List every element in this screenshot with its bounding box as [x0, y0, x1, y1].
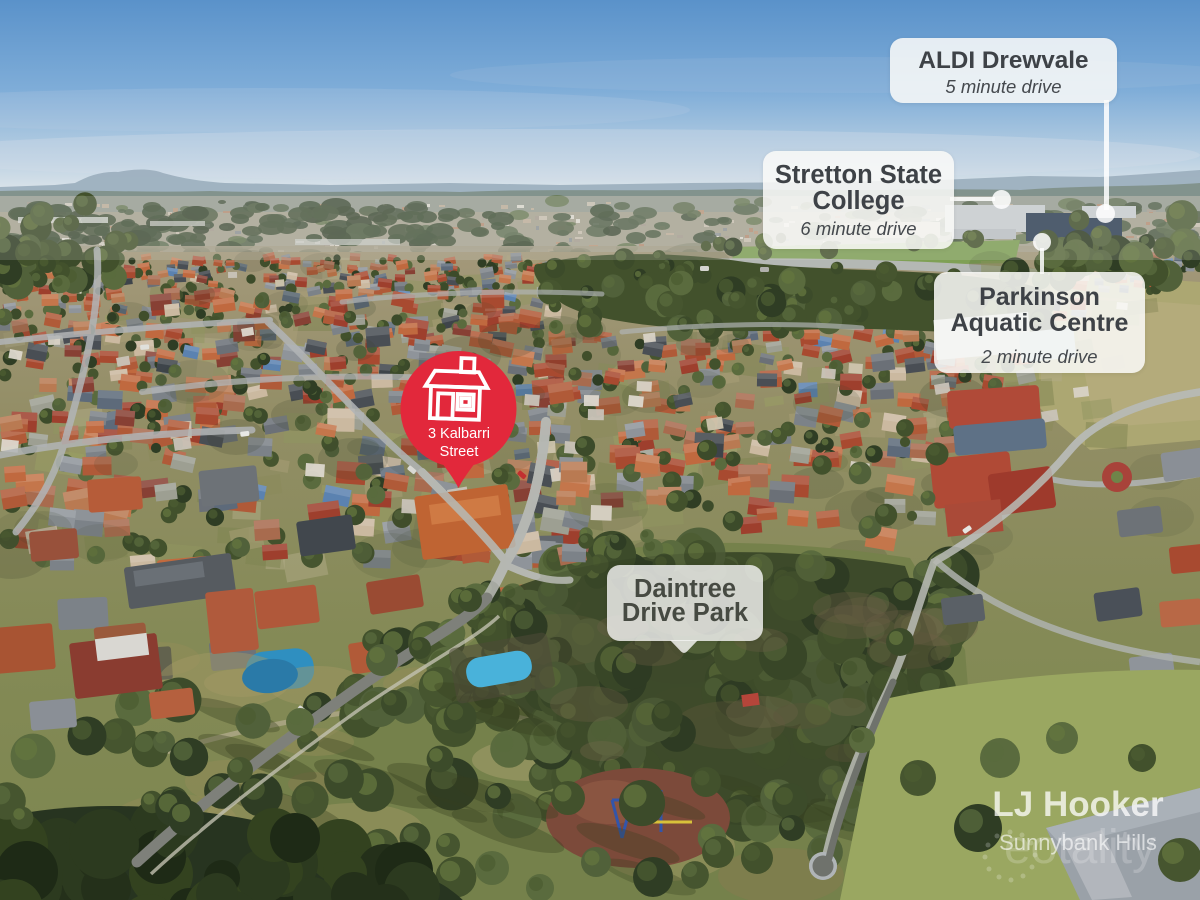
svg-text:Street: Street — [440, 444, 479, 460]
svg-text:3 Kalbarri: 3 Kalbarri — [428, 426, 490, 442]
